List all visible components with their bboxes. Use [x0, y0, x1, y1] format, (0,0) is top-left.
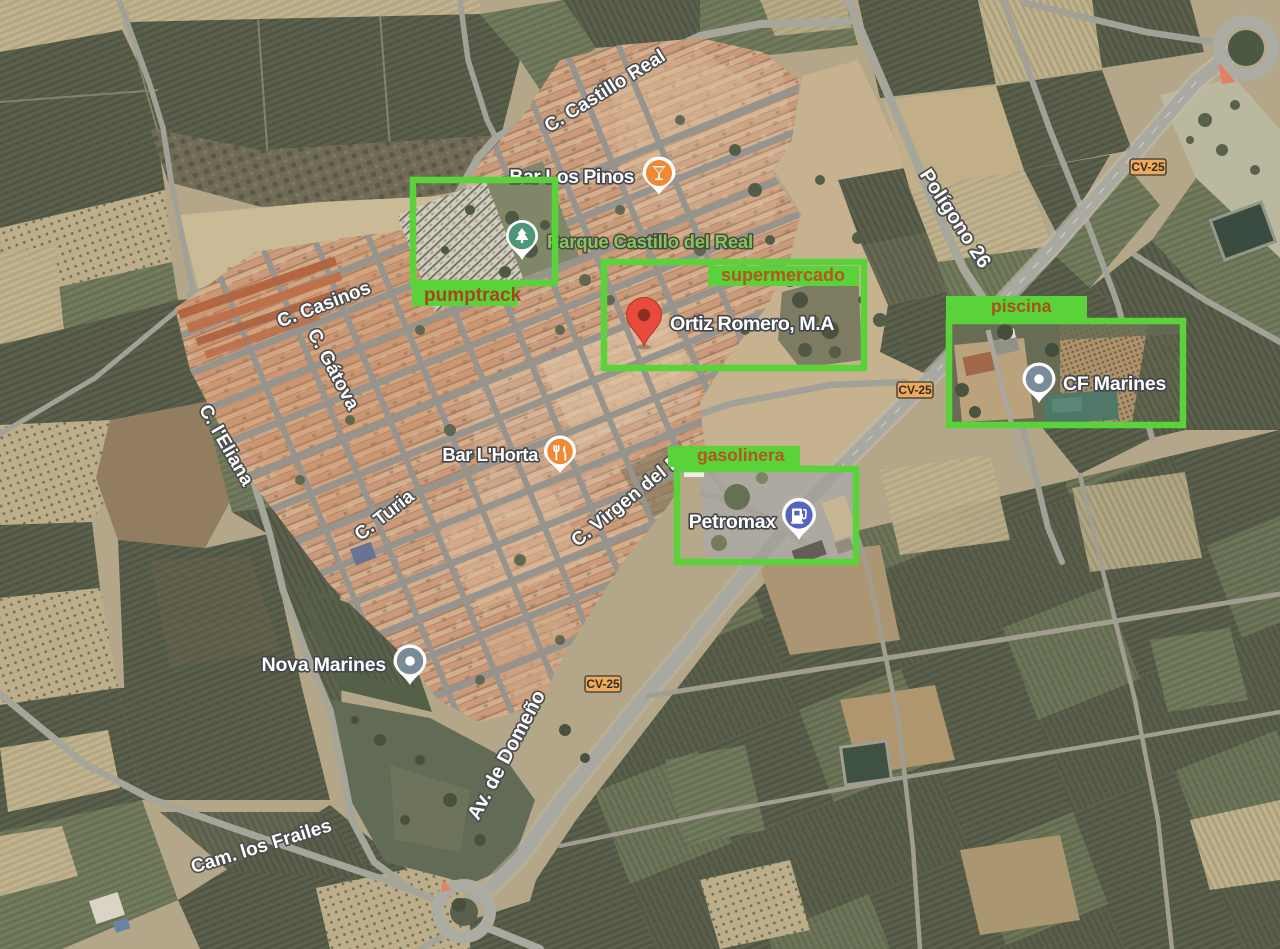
- svg-text:Nova Marines: Nova Marines: [262, 654, 387, 676]
- svg-text:CV-25: CV-25: [898, 383, 932, 397]
- svg-text:CV-25: CV-25: [586, 677, 620, 691]
- svg-text:Parque Castillo del Real: Parque Castillo del Real: [547, 231, 753, 252]
- svg-text:gasolinera: gasolinera: [697, 445, 785, 465]
- svg-text:Ortiz Romero, M.A: Ortiz Romero, M.A: [670, 313, 834, 335]
- svg-text:CF Marines: CF Marines: [1063, 373, 1166, 395]
- svg-text:piscina: piscina: [991, 296, 1052, 316]
- svg-text:Bar L'Horta: Bar L'Horta: [442, 444, 539, 465]
- svg-text:CV-25: CV-25: [1131, 160, 1165, 174]
- svg-text:Petromax: Petromax: [689, 511, 777, 533]
- svg-text:pumptrack: pumptrack: [424, 285, 522, 306]
- svg-text:supermercado: supermercado: [721, 265, 845, 285]
